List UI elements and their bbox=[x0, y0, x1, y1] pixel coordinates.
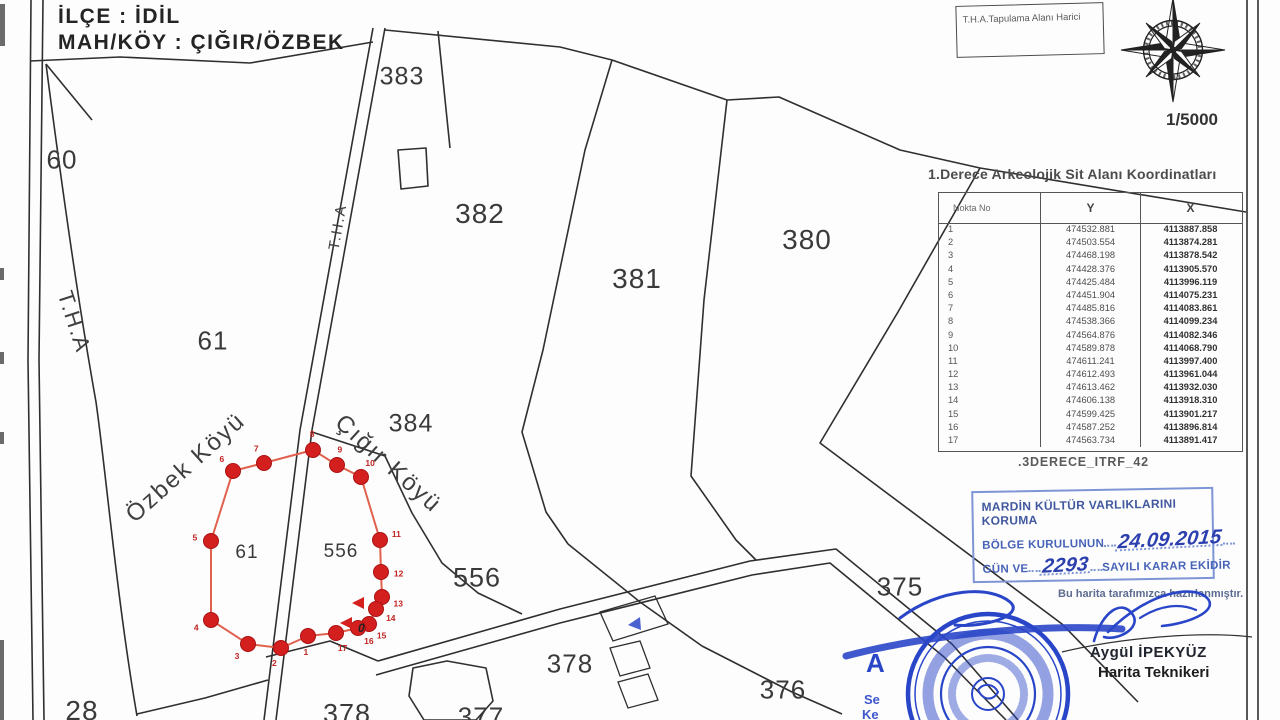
place-name-label: Çığır Köyü bbox=[329, 409, 447, 519]
place-name-label: T.H.A bbox=[52, 288, 96, 357]
cadastral-map-sheet: 1234567891011121314151617 0 bbox=[0, 0, 1280, 720]
place-name-label: Özbek Köyü bbox=[121, 407, 252, 529]
place-name-label: T.H.A bbox=[326, 203, 351, 252]
place-labels-layer: Özbek KöyüÇığır KöyüT.H.AT.H.A bbox=[0, 0, 1280, 720]
